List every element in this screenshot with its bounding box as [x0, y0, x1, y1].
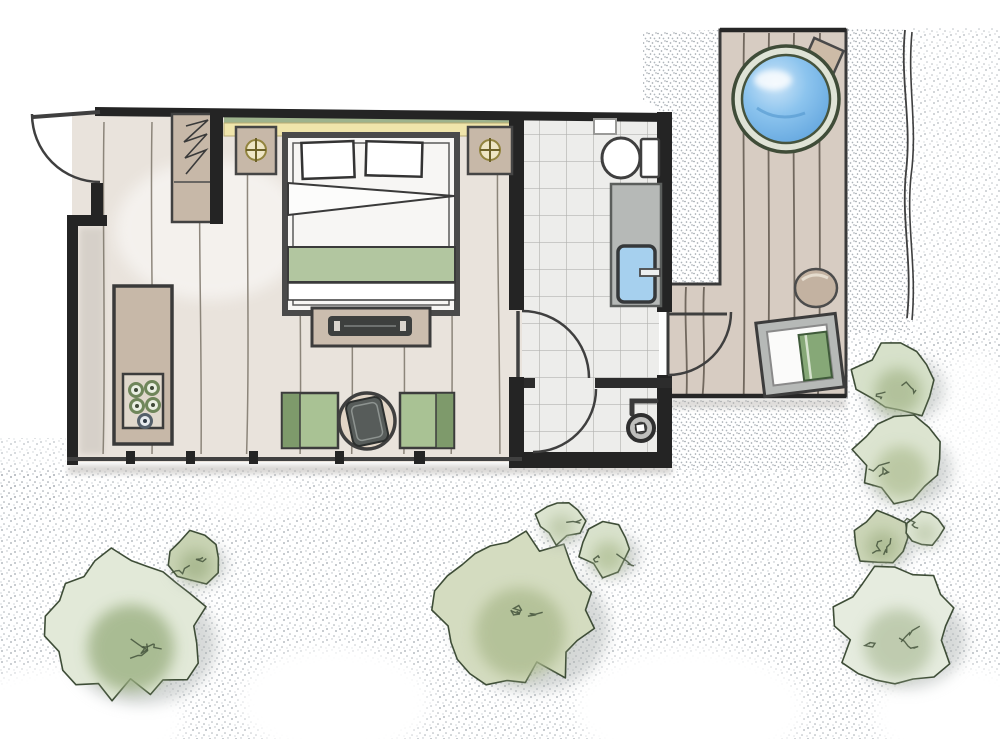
- wall-partition-lower: [509, 377, 524, 465]
- lounger-towel: [799, 332, 832, 381]
- water-highlight: [754, 70, 792, 90]
- door-post: [91, 183, 103, 226]
- flush-plate: [594, 119, 616, 134]
- wall-bath-right-lower: [657, 375, 672, 465]
- coffee-table: [339, 393, 395, 449]
- toilet-bowl: [602, 138, 640, 178]
- wall-shower-divider-right: [595, 378, 672, 388]
- sun-lounger: [756, 313, 844, 396]
- wall-shade: [80, 228, 104, 454]
- floor-plan-canvas: [0, 0, 1000, 739]
- wardrobe: [172, 112, 223, 224]
- wardrobe-side-panel: [210, 112, 223, 224]
- bush-shade: [915, 523, 936, 544]
- toilet: [602, 138, 659, 178]
- floorplan-illustration: { "canvas": {"width": 1000, "height": 73…: [0, 0, 1000, 739]
- wall-bath-bottom: [509, 452, 672, 468]
- foot-bench: [312, 308, 430, 346]
- pillow-left: [301, 141, 354, 179]
- vanity: [611, 184, 661, 306]
- bush-shade: [475, 588, 565, 678]
- bush-shade: [88, 605, 175, 692]
- gravel-area-below-deck: [672, 400, 846, 470]
- bush-shade: [866, 530, 899, 563]
- pillow-right: [366, 141, 423, 176]
- kitchenette-console: [114, 286, 172, 444]
- deck-drop-shadow: [670, 399, 846, 408]
- nightstand-right: [468, 127, 512, 174]
- bush-shade: [180, 550, 212, 582]
- double-bed: [285, 135, 457, 313]
- nightstand-left: [236, 127, 276, 174]
- toilet-tank: [641, 139, 659, 177]
- gravel-area-right-of-deck: [846, 28, 910, 334]
- window-sill-line: [67, 457, 522, 461]
- armchair-right: [400, 393, 454, 448]
- plank-line: [103, 122, 104, 454]
- wall-left: [67, 215, 78, 465]
- gravel-area-left: [0, 438, 66, 510]
- armchair-left: [282, 393, 338, 448]
- gravel-area-beyond-fence: [912, 28, 1000, 334]
- bed-runner: [288, 247, 455, 282]
- pouf: [795, 269, 837, 307]
- tub-water: [742, 55, 830, 143]
- wall-shower-divider-left: [524, 378, 535, 388]
- building: [32, 107, 731, 468]
- bush-shade: [548, 515, 574, 541]
- faucet: [640, 269, 660, 276]
